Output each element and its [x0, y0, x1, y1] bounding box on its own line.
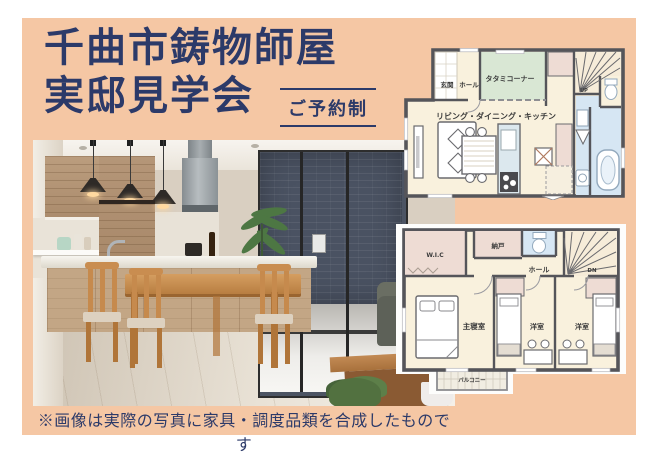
washbasin: [577, 110, 588, 126]
floorplan-2f: W.I.C 納戸 ホール DN 主寝室 洋室 洋室 バルコニー: [396, 224, 626, 396]
closet-west1: [496, 278, 524, 296]
label-hall-1f: ホール: [459, 81, 479, 89]
label-storage: 納戸: [492, 241, 506, 250]
label-master: 主寝室: [463, 321, 486, 331]
title-line-1: 千曲市鋳物師屋: [44, 24, 338, 72]
range-hood: [182, 158, 218, 212]
closet-1f: [548, 52, 574, 76]
label-stairs-dn: DN: [587, 268, 597, 274]
label-wic: W.I.C: [426, 252, 444, 259]
dining-table-symbol: [462, 136, 496, 174]
toilet-1f: [605, 85, 617, 100]
interior-photo: [33, 140, 455, 406]
label-entrance: 玄関: [441, 80, 455, 89]
west2-desk: [559, 350, 587, 364]
label-western1: 洋室: [530, 322, 544, 331]
ceiling-spotlight: [79, 146, 87, 150]
kettle: [57, 237, 71, 250]
washing-machine: [576, 170, 589, 186]
floorplan-1f: 玄関 ホール タタミコーナー リビング・ダイニング・キッチン UP: [404, 48, 626, 200]
cabinet-handle-slot: [99, 200, 155, 204]
chair-symbol: [466, 128, 475, 137]
green-plant: [329, 378, 381, 406]
outside-intercom: [312, 234, 326, 253]
wine-bottle: [209, 232, 215, 257]
label-tatami: タタミコーナー: [486, 74, 535, 83]
label-balcony: バルコニー: [458, 377, 486, 384]
canister: [74, 234, 82, 250]
label-stairs-up: UP: [580, 88, 588, 94]
under-stair-storage: [546, 166, 572, 194]
west1-desk: [524, 350, 552, 364]
counter-items: [185, 243, 202, 256]
table-leg: [213, 296, 220, 356]
canister: [84, 237, 91, 250]
entrance-step: [542, 196, 564, 200]
ceiling-spotlight: [251, 144, 259, 148]
flyer-page: 玄関 ホール タタミコーナー リビング・ダイニング・キッチン UP: [0, 0, 658, 459]
toilet-2f: [533, 239, 546, 253]
photo-disclaimer: ※画像は実際の写真に家具・調度品類を合成したものです: [33, 407, 455, 455]
label-ldk: リビング・ダイニング・キッチン: [436, 111, 556, 121]
sink: [501, 130, 516, 150]
label-western2: 洋室: [575, 322, 589, 331]
window-symbol: [460, 48, 478, 51]
window-symbol: [446, 368, 468, 371]
label-hall-2f: ホール: [529, 266, 550, 274]
white-shelf: [33, 250, 99, 255]
reservation-badge: ご予約制: [280, 88, 376, 127]
